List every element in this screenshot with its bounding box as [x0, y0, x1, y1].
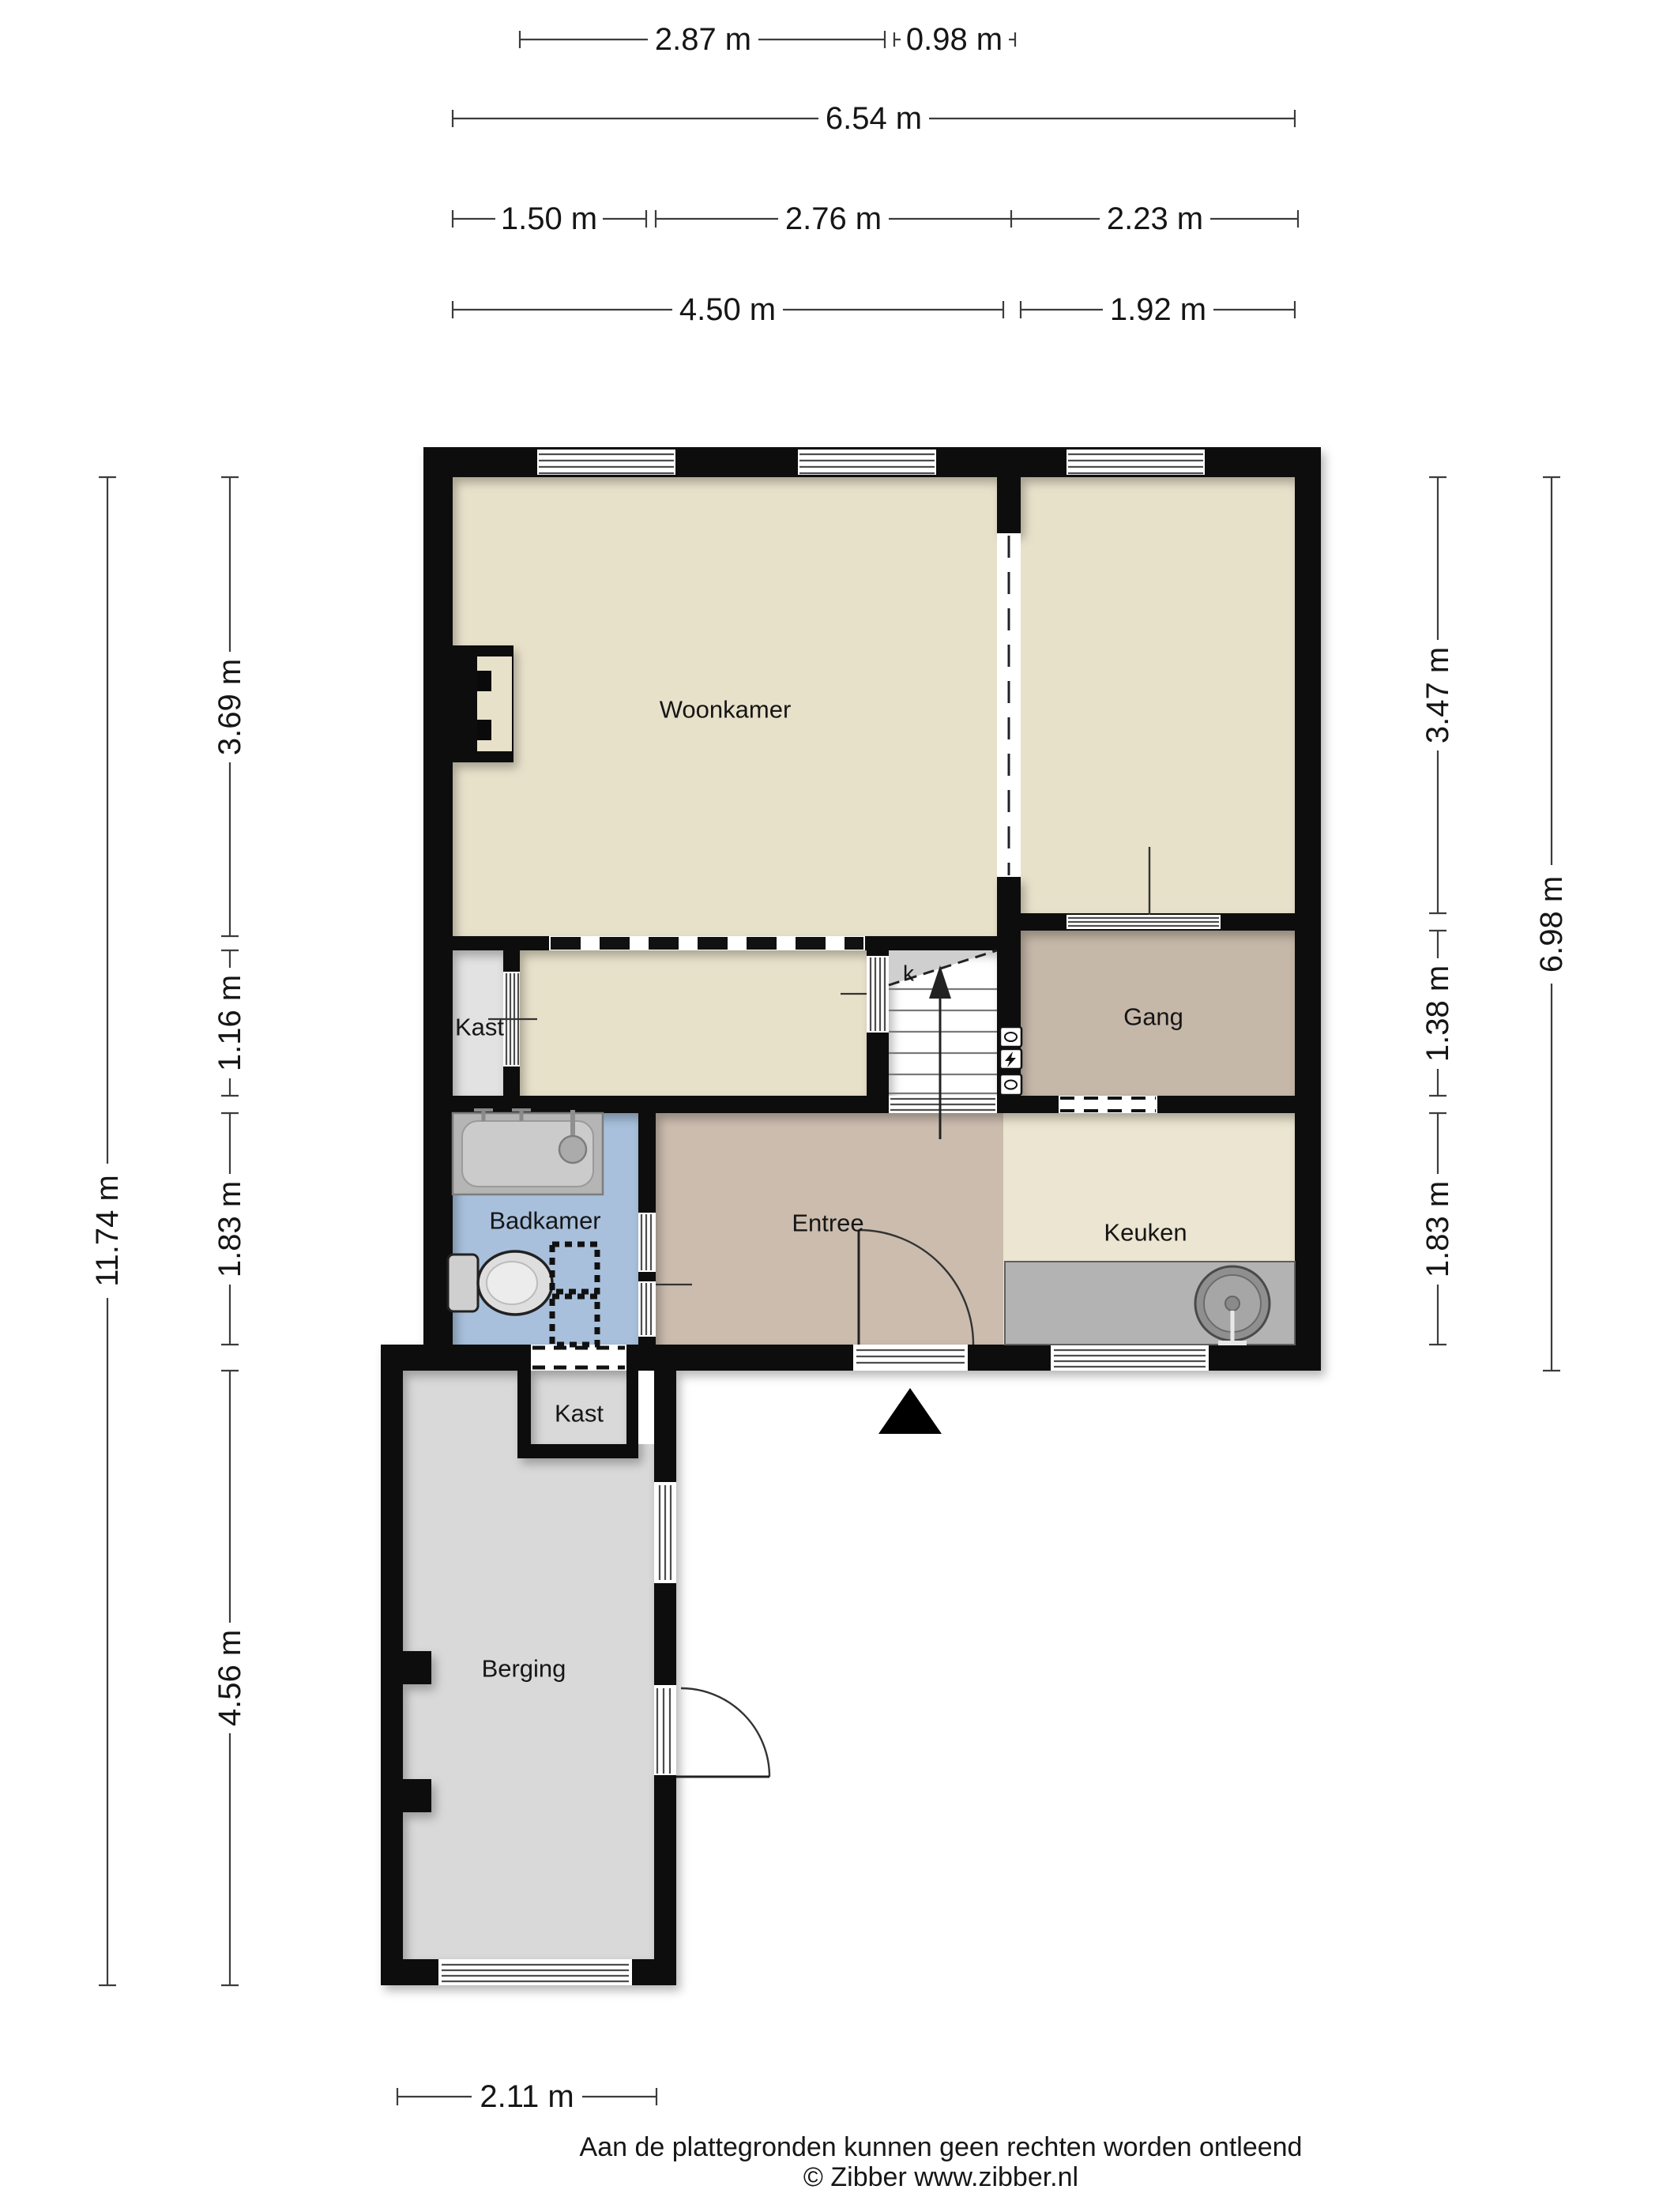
- wall-berging-left: [381, 1345, 403, 1985]
- opening-woonkamer: [549, 936, 865, 950]
- label-kast-middle: Kast: [455, 1014, 504, 1041]
- floor-voorkamer: [1021, 477, 1295, 913]
- dim-label: 1.38 m: [1420, 965, 1455, 1062]
- dim-label: 6.98 m: [1534, 876, 1569, 972]
- opening-badkamer-kast: [531, 1345, 626, 1371]
- threshold-stairs: [889, 1096, 997, 1113]
- wall-middle-lower: [423, 1096, 1295, 1113]
- dim-label: 1.83 m: [213, 1181, 247, 1277]
- wall-kastberging-bottom: [517, 1444, 638, 1458]
- dim-label: 1.50 m: [501, 201, 597, 236]
- stair-closet-label: k: [903, 961, 915, 986]
- dim-row1-098: 0.98 m: [894, 22, 1015, 57]
- window-top-3: [1066, 450, 1205, 475]
- divider-ensuite: [997, 533, 1021, 877]
- wall-divider-bottom-stub: [997, 877, 1021, 950]
- dim-label: 1.16 m: [213, 975, 247, 1071]
- chimney-tab-top: [477, 671, 491, 691]
- chimney-tab-bottom: [477, 720, 491, 740]
- kitchen: [1005, 1262, 1295, 1345]
- dim-label: 6.54 m: [826, 101, 922, 136]
- window-berging-right: [654, 1482, 676, 1583]
- dim-label: 0.98 m: [906, 22, 1003, 57]
- dim-label: 2.11 m: [480, 2079, 574, 2114]
- exterior-sliver: [638, 1371, 654, 1444]
- floor-middle-room: [520, 950, 867, 1096]
- dim-label: 2.23 m: [1107, 201, 1203, 236]
- wall-berging-right: [654, 1371, 676, 1985]
- footer-copyright: © Zibber www.zibber.nl: [803, 2162, 1078, 2192]
- chimney-niche: [477, 656, 512, 751]
- footer-disclaimer: Aan de plattegronden kunnen geen rechten…: [580, 2132, 1303, 2162]
- dim-label: 1.83 m: [1420, 1181, 1455, 1277]
- window-keuken: [1051, 1345, 1209, 1371]
- wall-left: [423, 447, 453, 1345]
- wall-pilaster-1: [403, 1651, 431, 1684]
- door-badkamer-upper: [638, 1213, 656, 1272]
- window-berging-bottom: [438, 1959, 632, 1985]
- dim-label: 11.74 m: [90, 1175, 125, 1287]
- kitchen-sink-icon: [1195, 1266, 1270, 1343]
- dim-label: 4.50 m: [679, 292, 776, 327]
- label-woonkamer: Woonkamer: [660, 696, 792, 724]
- label-gang: Gang: [1123, 1003, 1183, 1031]
- dim-label: 4.56 m: [213, 1630, 247, 1726]
- label-kast-berging: Kast: [555, 1400, 604, 1428]
- water-meter-icon: [1000, 1074, 1021, 1095]
- label-badkamer: Badkamer: [489, 1207, 600, 1235]
- wall-divider-top-stub: [997, 477, 1021, 533]
- meter-boxes: [1000, 1027, 1021, 1095]
- wall-pilaster-2: [403, 1779, 431, 1812]
- dim-label: 3.69 m: [213, 659, 247, 755]
- toilet-icon: [448, 1251, 552, 1315]
- dim-label: 1.92 m: [1110, 292, 1206, 327]
- wall-right: [1295, 447, 1321, 1371]
- dim-label: 3.47 m: [1420, 647, 1455, 743]
- dim-label: 2.87 m: [655, 22, 751, 57]
- dim-left-116: 1.16 m: [213, 950, 247, 1096]
- opening-gang-keuken: [1059, 1096, 1157, 1113]
- window-top-2: [798, 450, 936, 475]
- meter-box-icon: [1000, 1027, 1021, 1047]
- bathtub-icon: [453, 1108, 603, 1194]
- label-keuken: Keuken: [1104, 1219, 1187, 1247]
- label-berging: Berging: [482, 1655, 566, 1683]
- window-top-1: [537, 450, 675, 475]
- label-entree: Entree: [792, 1209, 863, 1237]
- floorplan-page: k: [0, 0, 1659, 2212]
- dim-label: 2.76 m: [785, 201, 882, 236]
- floorplan-canvas: k: [0, 0, 1659, 2212]
